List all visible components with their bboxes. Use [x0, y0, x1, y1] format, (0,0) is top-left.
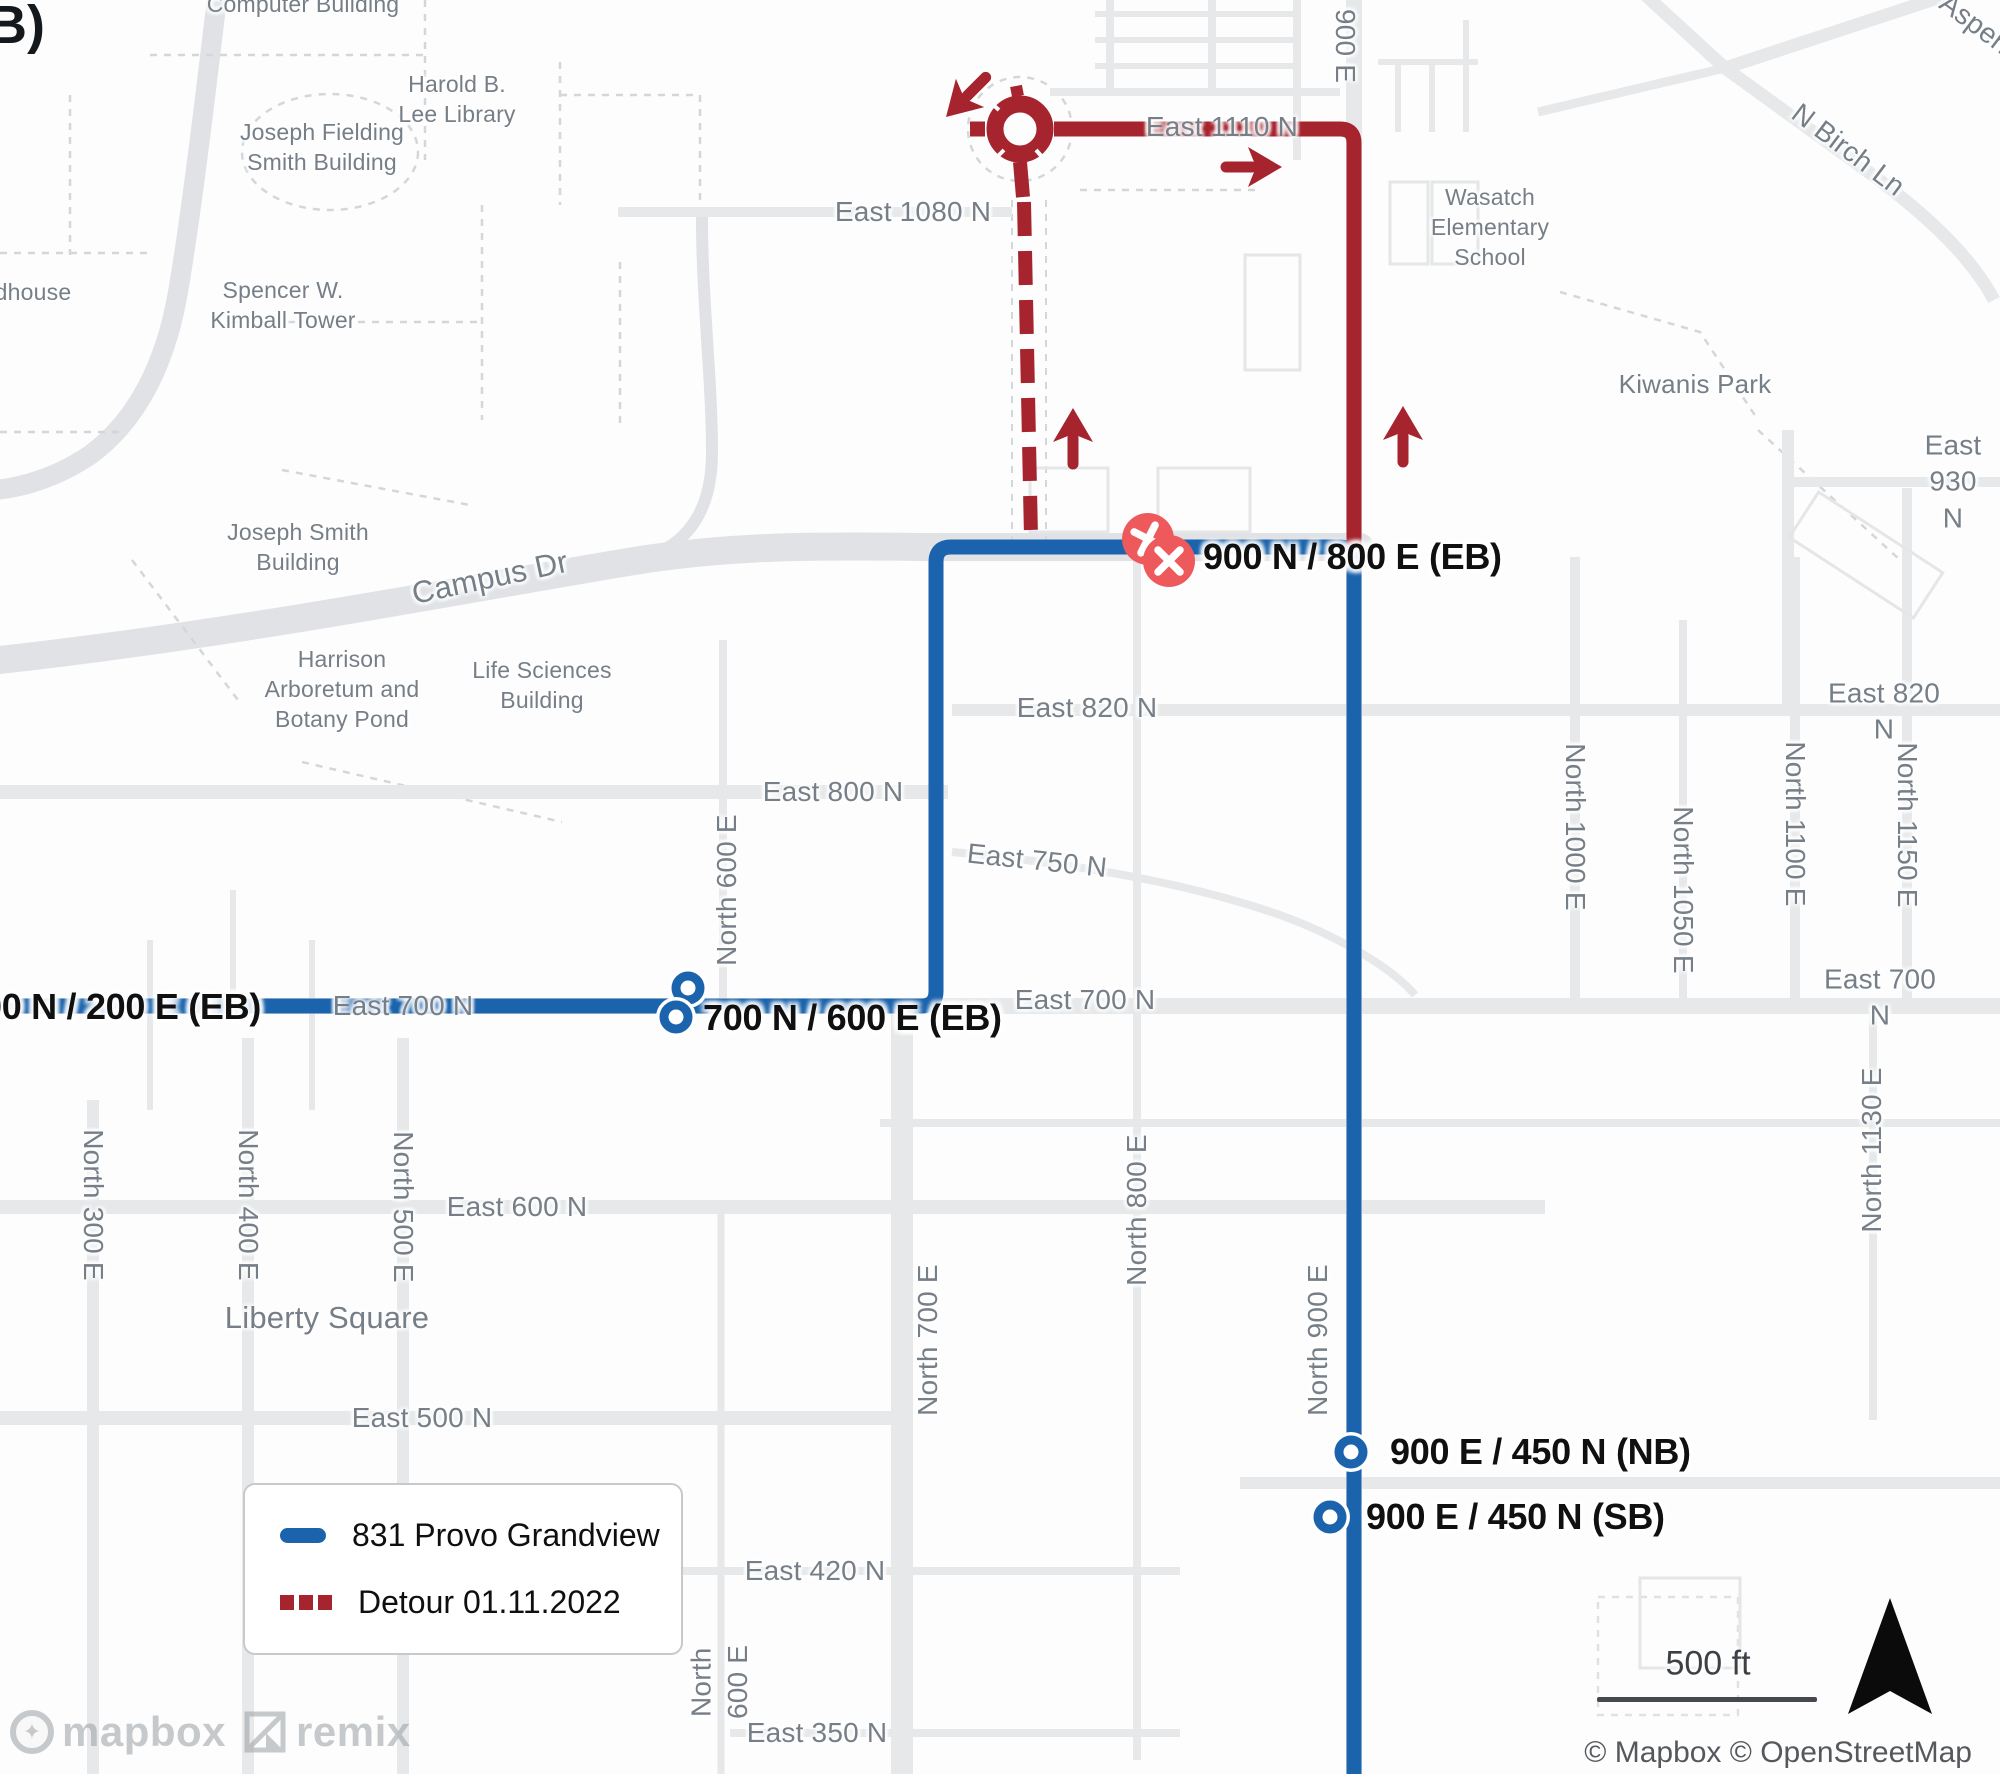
street-label: East 820 N	[1017, 690, 1158, 726]
arrow-up-icon	[1053, 408, 1093, 464]
poi-label: Harold B. Lee Library	[398, 70, 515, 130]
street-label: East 700 N	[1820, 962, 1940, 1035]
street-label: East 820 N	[1826, 676, 1942, 749]
map-attribution[interactable]: © Mapbox © OpenStreetMap	[1584, 1736, 1972, 1770]
watermarks: ✦ mapbox remix	[10, 1708, 411, 1756]
stop-label: 900 N / 800 E (EB)	[1203, 536, 1502, 578]
street-label: East 800 N	[763, 774, 904, 810]
street-label: North 900 E	[1300, 1264, 1336, 1416]
street-label: East 700 N	[1015, 982, 1156, 1018]
stop-circle-icon	[1310, 1497, 1350, 1537]
street-label: North 600 E	[684, 1636, 757, 1728]
stop-circle-icon	[1331, 1432, 1371, 1472]
legend-row-detour: Detour 01.11.2022	[245, 1584, 681, 1621]
north-arrow-icon	[1848, 1598, 1932, 1714]
street-label: East 700 N	[333, 988, 474, 1024]
stop-label: 00 N / 200 E (EB)	[0, 986, 261, 1028]
poi-label: Computer Building	[207, 0, 400, 20]
poi-label: Spencer W. Kimball Tower	[210, 276, 355, 336]
poi-label: Harrison Arboretum and Botany Pond	[265, 645, 420, 735]
street-label: 900 E	[1327, 9, 1363, 83]
stop-label: 900 E / 450 N (SB)	[1366, 1496, 1665, 1538]
stop-label: 900 E / 450 N (NB)	[1390, 1431, 1691, 1473]
figure-label: B)	[0, 0, 45, 56]
poi-label: Joseph Fielding Smith Building	[240, 118, 404, 178]
detour-line-swatch	[280, 1595, 332, 1610]
stop-markers[interactable]	[656, 968, 1371, 1537]
street-label: North 700 E	[910, 1264, 946, 1416]
street-label: North 300 E	[75, 1129, 111, 1281]
street-label: North 1150 E	[1889, 742, 1925, 907]
poi-label: Liberty Square	[225, 1298, 429, 1338]
street-label: North 800 E	[1119, 1134, 1155, 1286]
poi-label: Life Sciences Building	[472, 656, 611, 716]
street-label: North 1130 E	[1854, 1067, 1890, 1232]
street-label: North 400 E	[230, 1129, 266, 1281]
x-circle-icon	[1143, 535, 1195, 587]
street-label: North 500 E	[385, 1131, 421, 1283]
street-label: East 600 N	[447, 1189, 588, 1225]
remix-wordmark: remix	[296, 1708, 411, 1756]
street-label: North 1050 E	[1665, 806, 1701, 973]
street-label: East 420 N	[745, 1553, 886, 1589]
street-label: East 1110 N	[1146, 109, 1298, 145]
map-canvas[interactable]: B) East 1080 N East 1110 N 900 E East 93…	[0, 0, 2000, 1774]
street-label: East 930 N	[1925, 427, 1982, 536]
poi-label: dhouse	[0, 278, 71, 308]
street-label: North 600 E	[709, 814, 745, 966]
street-label: East 1080 N	[835, 194, 991, 230]
arrow-up-icon	[1383, 406, 1423, 462]
scale-bar	[1597, 1697, 1817, 1702]
arrow-right-icon	[1226, 147, 1282, 187]
legend: 831 Provo Grandview Detour 01.11.2022	[243, 1483, 683, 1655]
street-label: North 1000 E	[1557, 743, 1593, 910]
street-label: North 1100 E	[1777, 741, 1813, 906]
mapbox-wordmark: mapbox	[62, 1708, 226, 1756]
route-line-swatch	[280, 1528, 326, 1543]
legend-route-label: 831 Provo Grandview	[352, 1517, 660, 1554]
remix-logo[interactable]: remix	[242, 1708, 411, 1756]
poi-label: Wasatch Elementary School	[1431, 183, 1549, 273]
street-label: East 500 N	[352, 1400, 493, 1436]
mapbox-logo[interactable]: ✦ mapbox	[10, 1708, 226, 1756]
legend-detour-label: Detour 01.11.2022	[358, 1584, 621, 1621]
poi-label: Joseph Smith Building	[227, 518, 369, 578]
street-label: East 350 N	[747, 1715, 888, 1751]
stop-label: 700 N / 600 E (EB)	[703, 997, 1002, 1039]
mapbox-pin-icon: ✦	[10, 1710, 54, 1754]
legend-row-route: 831 Provo Grandview	[245, 1517, 681, 1554]
poi-label: Kiwanis Park	[1619, 368, 1772, 402]
scale-label: 500 ft	[1665, 1645, 1750, 1684]
closed-stop-markers[interactable]	[1115, 506, 1195, 587]
stop-circle-icon	[656, 997, 696, 1037]
remix-icon	[242, 1709, 288, 1755]
